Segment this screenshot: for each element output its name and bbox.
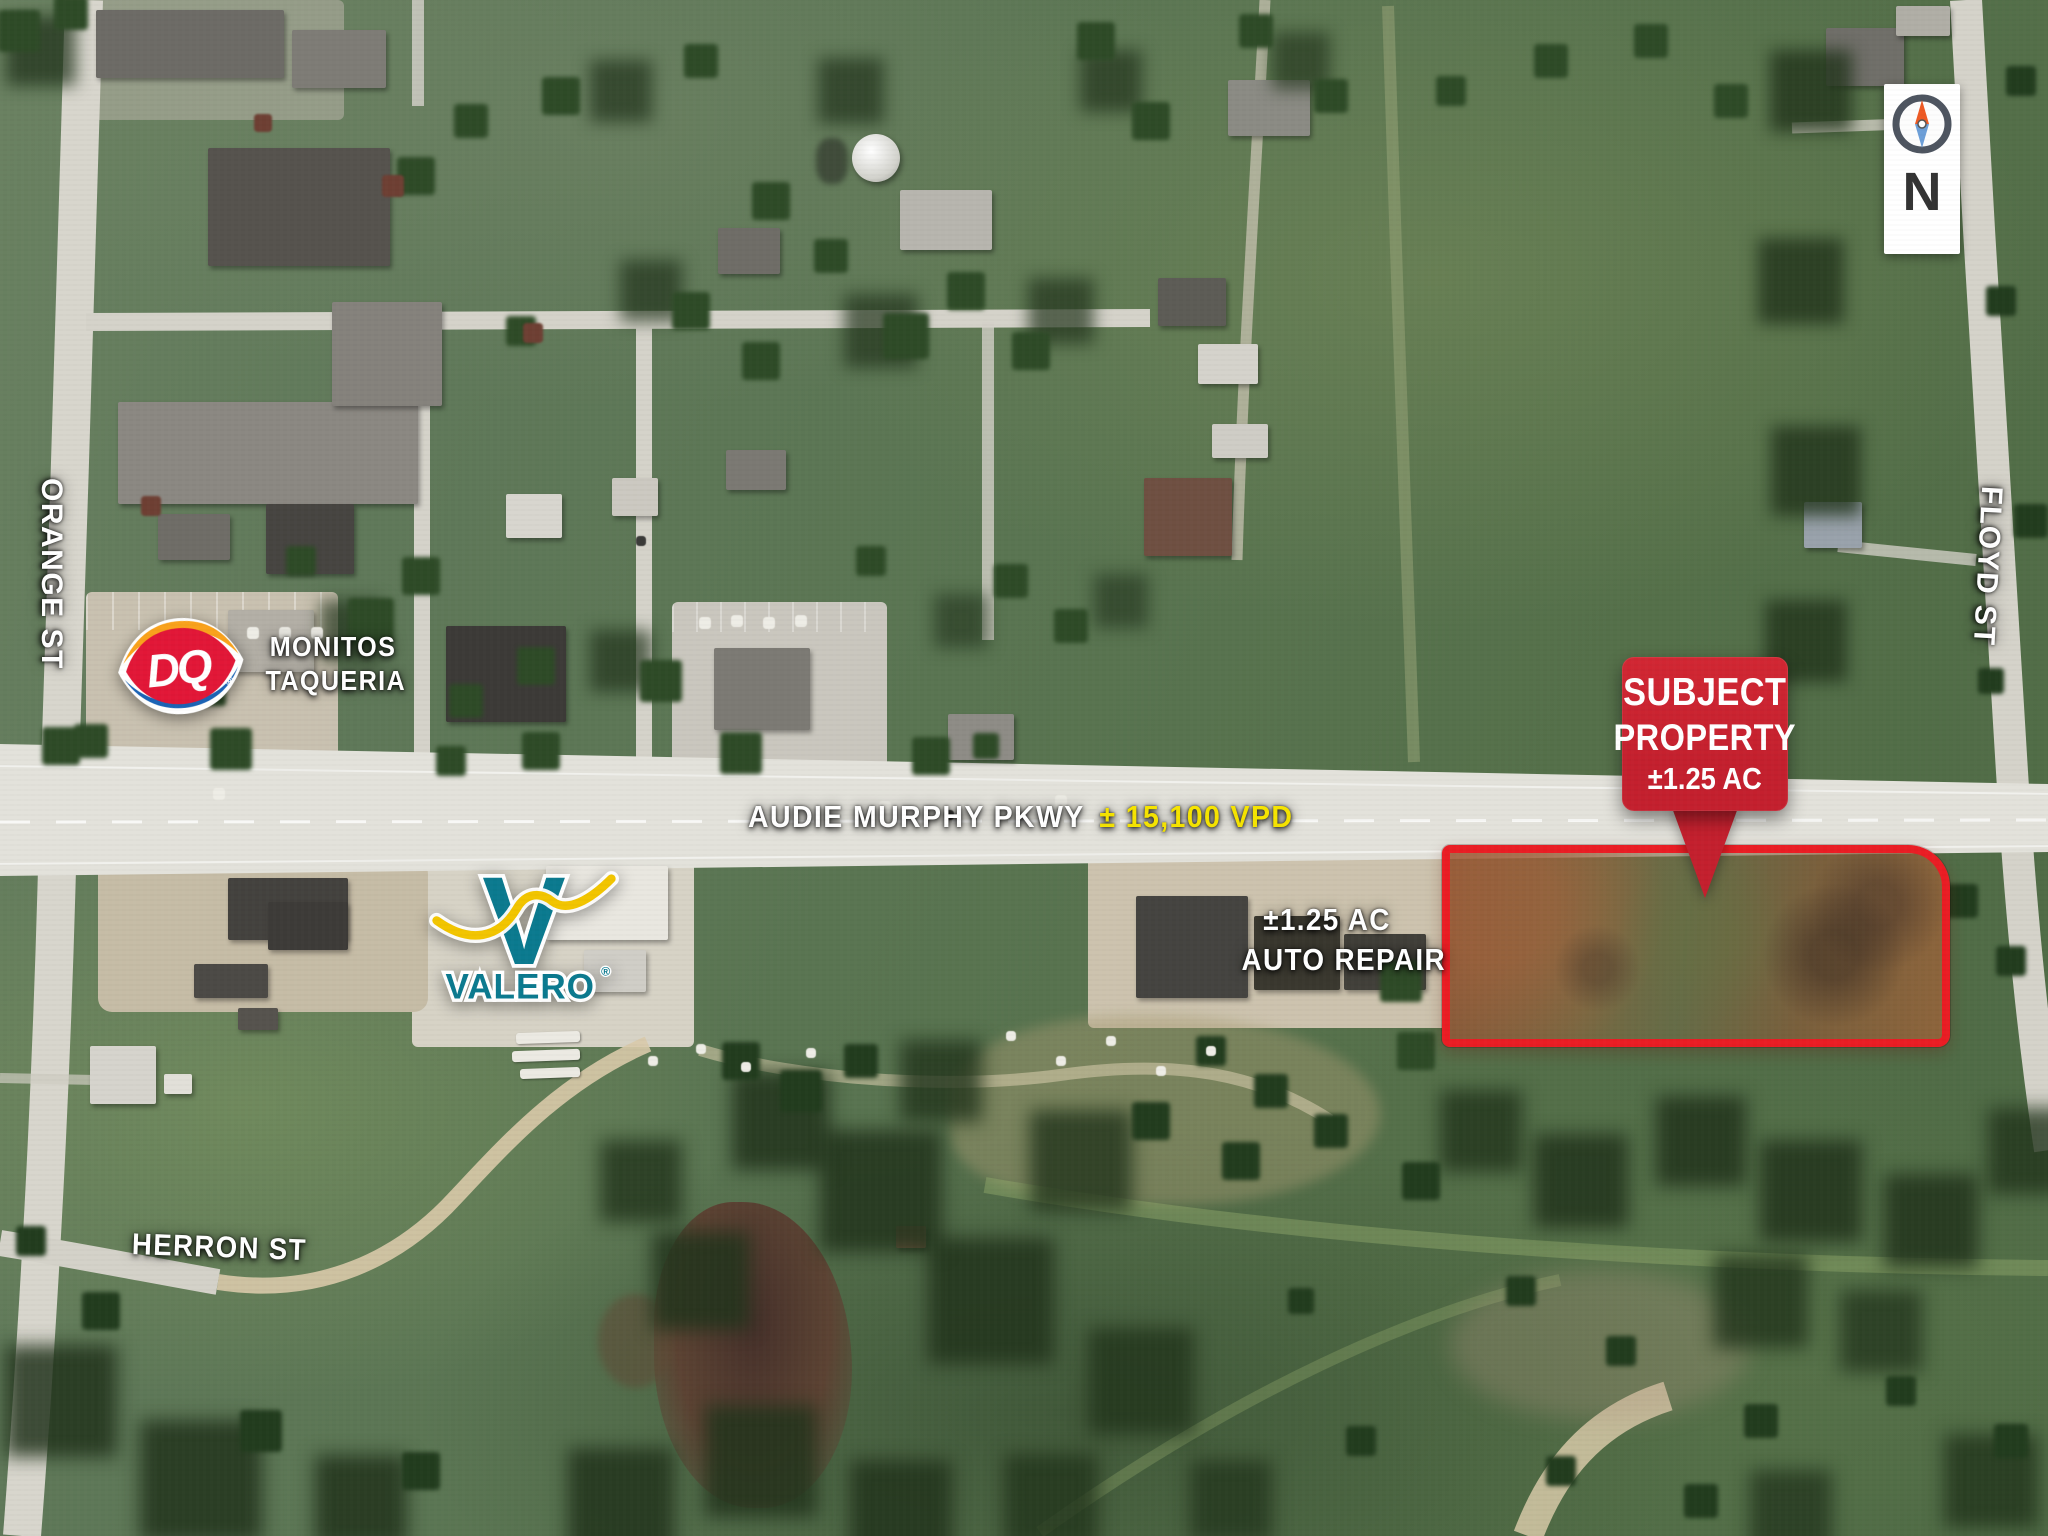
aerial-map: ORANGE ST FLOYD ST HERRON ST AUDIE MURPH… [0, 0, 2048, 1536]
photo-grain-overlay [0, 0, 2048, 1536]
